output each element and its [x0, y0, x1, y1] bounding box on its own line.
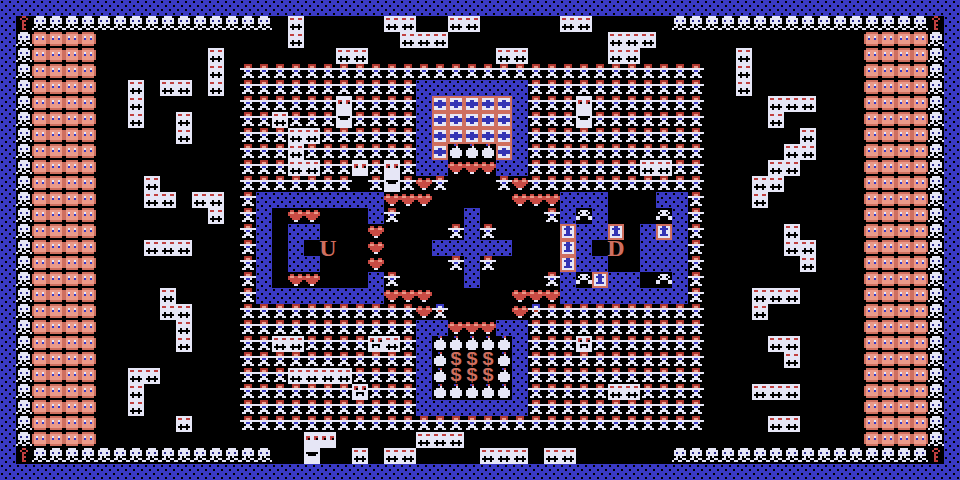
- creature: [512, 64, 528, 80]
- cake-item: [432, 336, 448, 352]
- face-enemy: [896, 208, 912, 224]
- creature: [592, 64, 608, 80]
- wall-tile: [560, 208, 576, 224]
- face-enemy: [48, 112, 64, 128]
- wall-tile: [784, 464, 800, 480]
- face-enemy: [864, 304, 880, 320]
- wall-tile: [0, 304, 16, 320]
- creature: [560, 176, 576, 192]
- wall-tile: [640, 0, 656, 16]
- money-tile-glyph: $: [482, 368, 494, 384]
- wall-tile: [0, 464, 16, 480]
- face-enemy: [32, 144, 48, 160]
- critter: [800, 256, 816, 272]
- critter: [160, 304, 176, 320]
- skull-tile: [928, 352, 944, 368]
- wall-tile: [896, 464, 912, 480]
- skull-tile: [832, 448, 848, 464]
- creature: [256, 128, 272, 144]
- creature: [288, 304, 304, 320]
- creature: [560, 128, 576, 144]
- creature: [592, 96, 608, 112]
- creature: [688, 96, 704, 112]
- face-enemy: [896, 128, 912, 144]
- creature: [240, 320, 256, 336]
- skull-tile: [928, 368, 944, 384]
- creature: [608, 64, 624, 80]
- face-enemy: [64, 128, 80, 144]
- heart-item: [384, 288, 400, 304]
- critter: [784, 416, 800, 432]
- creature: [576, 144, 592, 160]
- face-enemy: [864, 288, 880, 304]
- skull-tile: [16, 112, 32, 128]
- creature: [240, 384, 256, 400]
- skull-tile: [16, 64, 32, 80]
- creature: [272, 304, 288, 320]
- skull-tile: [208, 16, 224, 32]
- critter-face: [368, 336, 384, 352]
- creature: [240, 240, 256, 256]
- creature: [352, 80, 368, 96]
- key-item: [928, 448, 944, 464]
- skull-tile: [192, 16, 208, 32]
- wall-tile: [288, 288, 304, 304]
- creature: [672, 160, 688, 176]
- face-enemy: [864, 80, 880, 96]
- creature: [624, 368, 640, 384]
- wall-tile: [256, 272, 272, 288]
- creature: [672, 368, 688, 384]
- face-enemy: [896, 368, 912, 384]
- wall-tile: [32, 464, 48, 480]
- face-enemy: [880, 160, 896, 176]
- critter: [768, 416, 784, 432]
- creature: [432, 64, 448, 80]
- heart-item: [304, 208, 320, 224]
- face-enemy: [48, 400, 64, 416]
- creature: [272, 320, 288, 336]
- wall-tile: [464, 272, 480, 288]
- creature: [592, 304, 608, 320]
- creature: [688, 160, 704, 176]
- wall-tile: [512, 320, 528, 336]
- wall-tile: [432, 240, 448, 256]
- creature: [560, 336, 576, 352]
- wall-tile: [576, 224, 592, 240]
- skull-tile: [16, 80, 32, 96]
- skull-tile: [16, 288, 32, 304]
- wall-tile: [464, 240, 480, 256]
- face-enemy: [880, 256, 896, 272]
- creature: [240, 304, 256, 320]
- wall-tile: [96, 464, 112, 480]
- critter: [176, 304, 192, 320]
- creature: [400, 368, 416, 384]
- critter: [448, 432, 464, 448]
- skull-tile: [176, 448, 192, 464]
- critter: [800, 240, 816, 256]
- wall-tile: [528, 0, 544, 16]
- face-enemy: [48, 224, 64, 240]
- creature: [368, 320, 384, 336]
- creature: [256, 416, 272, 432]
- wall-tile: [496, 160, 512, 176]
- critter: [128, 112, 144, 128]
- creature: [560, 416, 576, 432]
- face-enemy: [64, 192, 80, 208]
- creature: [240, 400, 256, 416]
- face-enemy: [64, 432, 80, 448]
- critter: [784, 288, 800, 304]
- creature: [624, 400, 640, 416]
- creature: [608, 352, 624, 368]
- skull-tile: [16, 352, 32, 368]
- face-enemy: [880, 368, 896, 384]
- creature: [384, 368, 400, 384]
- face-enemy: [80, 144, 96, 160]
- wall-tile: [464, 80, 480, 96]
- wall-tile: [272, 464, 288, 480]
- wall-tile: [624, 0, 640, 16]
- wall-tile: [944, 288, 960, 304]
- skull-tile: [256, 16, 272, 32]
- creature: [688, 256, 704, 272]
- heart-item: [368, 240, 384, 256]
- creature: [672, 80, 688, 96]
- wall-tile: [656, 256, 672, 272]
- wall-tile: [256, 192, 272, 208]
- creature: [256, 112, 272, 128]
- creature: [672, 96, 688, 112]
- creature: [672, 64, 688, 80]
- creature: [560, 160, 576, 176]
- wall-tile: [144, 0, 160, 16]
- face-enemy: [864, 416, 880, 432]
- creature: [672, 176, 688, 192]
- creature: [656, 368, 672, 384]
- creature: [288, 384, 304, 400]
- skull-tile: [720, 448, 736, 464]
- wall-tile: [496, 400, 512, 416]
- creature: [592, 320, 608, 336]
- wall-tile: [144, 464, 160, 480]
- small-skull-tile: [656, 272, 672, 288]
- wall-tile: [832, 464, 848, 480]
- wall-tile: [48, 464, 64, 480]
- creature: [240, 368, 256, 384]
- wall-tile: [320, 464, 336, 480]
- creature: [592, 384, 608, 400]
- wall-tile: [416, 352, 432, 368]
- wall-tile: [944, 240, 960, 256]
- wall-tile: [464, 0, 480, 16]
- face-enemy: [32, 176, 48, 192]
- face-enemy: [64, 80, 80, 96]
- creature: [320, 144, 336, 160]
- skull-tile: [16, 320, 32, 336]
- wall-tile: [512, 160, 528, 176]
- wall-tile: [320, 192, 336, 208]
- wall-tile: [0, 64, 16, 80]
- creature: [656, 320, 672, 336]
- wall-tile: [0, 128, 16, 144]
- creature: [624, 304, 640, 320]
- wall-tile: [368, 208, 384, 224]
- wall-tile: [416, 160, 432, 176]
- creature: [240, 352, 256, 368]
- wall-tile: [608, 0, 624, 16]
- creature: [384, 272, 400, 288]
- wall-tile: [848, 0, 864, 16]
- wall-tile: [944, 128, 960, 144]
- critter: [400, 448, 416, 464]
- creature: [672, 400, 688, 416]
- wall-tile: [416, 0, 432, 16]
- critter: [784, 352, 800, 368]
- face-enemy: [64, 304, 80, 320]
- creature: [240, 64, 256, 80]
- creature: [256, 352, 272, 368]
- face-enemy: [80, 352, 96, 368]
- wall-tile: [0, 416, 16, 432]
- heart-item: [288, 208, 304, 224]
- wall-tile: [944, 272, 960, 288]
- wall-tile: [336, 192, 352, 208]
- cake-item: [480, 144, 496, 160]
- creature: [688, 192, 704, 208]
- wall-tile: [0, 80, 16, 96]
- wall-tile: [624, 288, 640, 304]
- creature: [672, 304, 688, 320]
- creature: [656, 128, 672, 144]
- wall-tile: [496, 80, 512, 96]
- creature: [560, 80, 576, 96]
- critter: [624, 48, 640, 64]
- heart-item: [512, 192, 528, 208]
- face-enemy: [64, 288, 80, 304]
- skull-tile: [800, 16, 816, 32]
- creature: [400, 160, 416, 176]
- skull-tile: [768, 448, 784, 464]
- critter: [176, 80, 192, 96]
- cross-bonus: [448, 128, 464, 144]
- face-enemy: [912, 368, 928, 384]
- creature: [544, 128, 560, 144]
- creature: [544, 320, 560, 336]
- creature: [272, 96, 288, 112]
- creature: [624, 112, 640, 128]
- wall-tile: [464, 224, 480, 240]
- face-enemy: [880, 336, 896, 352]
- face-enemy: [32, 80, 48, 96]
- creature: [624, 176, 640, 192]
- face-enemy: [864, 368, 880, 384]
- creature: [528, 352, 544, 368]
- face-enemy: [48, 144, 64, 160]
- creature: [320, 64, 336, 80]
- wall-tile: [0, 368, 16, 384]
- creature: [320, 400, 336, 416]
- critter: [208, 64, 224, 80]
- game-screen[interactable]: UD$$$$$$: [0, 0, 960, 480]
- creature: [592, 176, 608, 192]
- face-enemy: [864, 400, 880, 416]
- creature: [576, 400, 592, 416]
- wall-tile: [528, 464, 544, 480]
- cross-bonus: [496, 128, 512, 144]
- wall-tile: [496, 240, 512, 256]
- face-enemy: [48, 304, 64, 320]
- creature: [352, 352, 368, 368]
- wall-tile: [592, 192, 608, 208]
- face-enemy: [48, 192, 64, 208]
- critter-mouth: [304, 448, 320, 464]
- creature: [256, 80, 272, 96]
- wall-tile: [272, 0, 288, 16]
- wall-tile: [672, 240, 688, 256]
- creature: [624, 96, 640, 112]
- critter: [608, 48, 624, 64]
- wall-tile: [512, 464, 528, 480]
- wall-tile: [416, 368, 432, 384]
- wall-tile: [416, 400, 432, 416]
- skull-tile: [240, 16, 256, 32]
- creature: [544, 352, 560, 368]
- critter: [768, 96, 784, 112]
- wall-tile: [0, 144, 16, 160]
- wall-tile: [416, 128, 432, 144]
- face-enemy: [864, 432, 880, 448]
- creature: [672, 144, 688, 160]
- face-enemy: [864, 128, 880, 144]
- wall-tile: [352, 192, 368, 208]
- wall-tile: [0, 176, 16, 192]
- skull-tile: [848, 16, 864, 32]
- critter: [208, 48, 224, 64]
- face-enemy: [912, 256, 928, 272]
- face-enemy: [32, 384, 48, 400]
- skull-tile: [848, 448, 864, 464]
- critter: [768, 160, 784, 176]
- creature: [624, 64, 640, 80]
- critter: [784, 144, 800, 160]
- face-enemy: [48, 32, 64, 48]
- skull-tile: [928, 160, 944, 176]
- face-enemy: [80, 368, 96, 384]
- face-enemy: [80, 336, 96, 352]
- creature: [640, 320, 656, 336]
- critter-mouth: [384, 176, 400, 192]
- wall-tile: [576, 240, 592, 256]
- creature: [544, 144, 560, 160]
- face-enemy: [32, 224, 48, 240]
- wall-tile: [0, 352, 16, 368]
- creature: [320, 160, 336, 176]
- wall-tile: [336, 288, 352, 304]
- creature: [400, 176, 416, 192]
- wall-tile: [752, 0, 768, 16]
- critter: [288, 160, 304, 176]
- creature: [336, 80, 352, 96]
- creature: [640, 304, 656, 320]
- cross-bonus: [432, 144, 448, 160]
- money-tile-glyph: $: [482, 352, 494, 368]
- wall-tile: [288, 256, 304, 272]
- face-enemy: [912, 32, 928, 48]
- wall-tile: [32, 0, 48, 16]
- critter: [800, 96, 816, 112]
- wall-tile: [480, 464, 496, 480]
- face-enemy: [32, 336, 48, 352]
- face-enemy: [80, 160, 96, 176]
- wall-tile: [416, 384, 432, 400]
- skull-tile: [208, 448, 224, 464]
- wall-tile: [816, 464, 832, 480]
- critter-eyes: [576, 96, 592, 112]
- wall-tile: [80, 464, 96, 480]
- creature: [608, 176, 624, 192]
- creature: [320, 128, 336, 144]
- critter: [288, 368, 304, 384]
- wall-tile: [496, 320, 512, 336]
- wall-tile: [0, 48, 16, 64]
- creature: [400, 304, 416, 320]
- face-enemy: [32, 432, 48, 448]
- creature: [256, 96, 272, 112]
- face-enemy: [32, 96, 48, 112]
- wall-tile: [256, 208, 272, 224]
- critter: [288, 144, 304, 160]
- wall-tile: [128, 464, 144, 480]
- wall-tile: [896, 0, 912, 16]
- critter: [736, 64, 752, 80]
- face-enemy: [64, 224, 80, 240]
- creature: [576, 352, 592, 368]
- critter: [464, 16, 480, 32]
- creature: [560, 400, 576, 416]
- creature: [384, 128, 400, 144]
- creature: [544, 64, 560, 80]
- creature: [256, 144, 272, 160]
- creature: [272, 128, 288, 144]
- wall-tile: [224, 464, 240, 480]
- creature: [528, 416, 544, 432]
- wall-tile: [592, 288, 608, 304]
- wall-tile: [64, 464, 80, 480]
- critter: [432, 32, 448, 48]
- creature: [608, 80, 624, 96]
- wall-tile: [464, 256, 480, 272]
- creature: [240, 144, 256, 160]
- critter-eyes: [352, 160, 368, 176]
- face-enemy: [880, 304, 896, 320]
- creature: [288, 416, 304, 432]
- skull-tile: [928, 336, 944, 352]
- face-enemy: [864, 336, 880, 352]
- creature: [352, 112, 368, 128]
- creature: [640, 400, 656, 416]
- critter: [496, 48, 512, 64]
- face-enemy: [80, 128, 96, 144]
- critter-mouth: [336, 112, 352, 128]
- critter: [768, 384, 784, 400]
- face-enemy: [864, 32, 880, 48]
- small-skull-tile: [576, 208, 592, 224]
- creature: [368, 144, 384, 160]
- door-item: [656, 224, 672, 240]
- creature: [480, 256, 496, 272]
